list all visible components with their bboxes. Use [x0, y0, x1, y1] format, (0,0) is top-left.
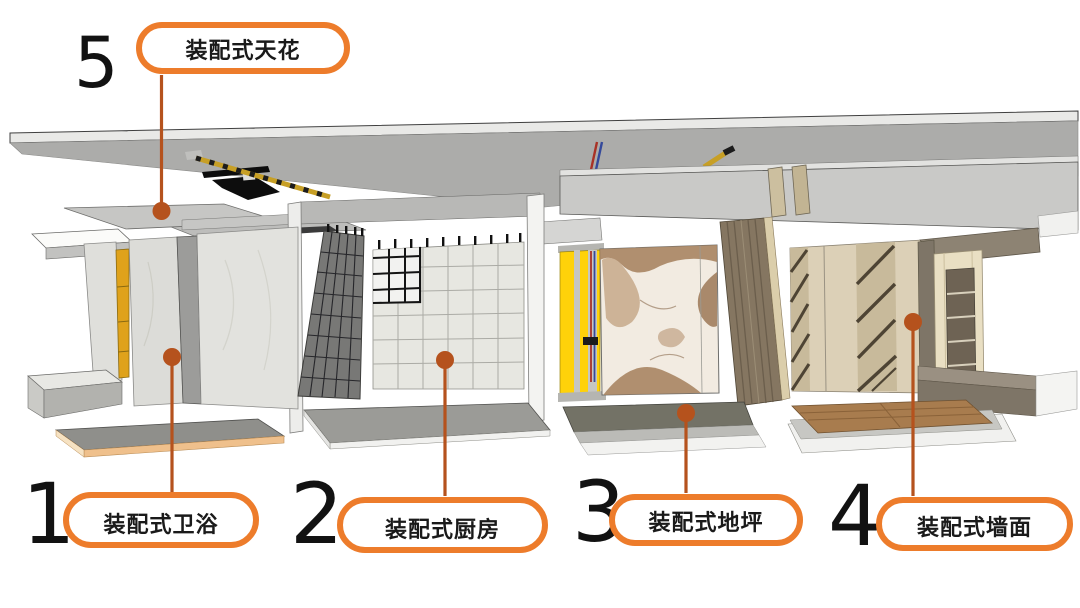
callout-label-kitchen: 装配式厨房 [337, 497, 548, 553]
wood-textured-panel [720, 217, 790, 406]
callout-number-4: 4 [828, 474, 881, 558]
bathroom-module [28, 227, 298, 457]
marble-feature-wall [600, 245, 719, 395]
callout-number-2: 2 [290, 472, 343, 556]
paneled-wall-module [788, 228, 1077, 453]
callout-label-floor: 装配式地坪 [609, 494, 803, 546]
leader-dot-4 [904, 313, 922, 331]
callout-label-text: 装配式墙面 [917, 510, 1032, 542]
callout-label-bathroom: 装配式卫浴 [63, 492, 259, 548]
callout-label-text: 装配式地坪 [648, 505, 763, 537]
floor-panel-assembly [563, 402, 766, 455]
callout-label-wall: 装配式墙面 [876, 497, 1073, 551]
leader-dot-2 [436, 351, 454, 369]
leader-dot-1 [163, 348, 181, 366]
callout-label-text: 装配式天花 [185, 33, 300, 65]
ceiling-beam [540, 156, 1078, 244]
callout-number-5: 5 [74, 28, 119, 98]
leader-dot-5 [153, 202, 171, 220]
callout-label-text: 装配式卫浴 [103, 507, 218, 539]
kitchen-module [298, 224, 550, 449]
callout-label-ceiling: 装配式天花 [136, 22, 350, 74]
figure: 5 装配式天花 1 装配式卫浴 2 装配式厨房 3 装配式地坪 4 装配式墙面 [0, 0, 1080, 608]
callout-label-text: 装配式厨房 [385, 512, 500, 544]
leader-dot-3 [677, 404, 695, 422]
service-riser-module [558, 243, 606, 402]
